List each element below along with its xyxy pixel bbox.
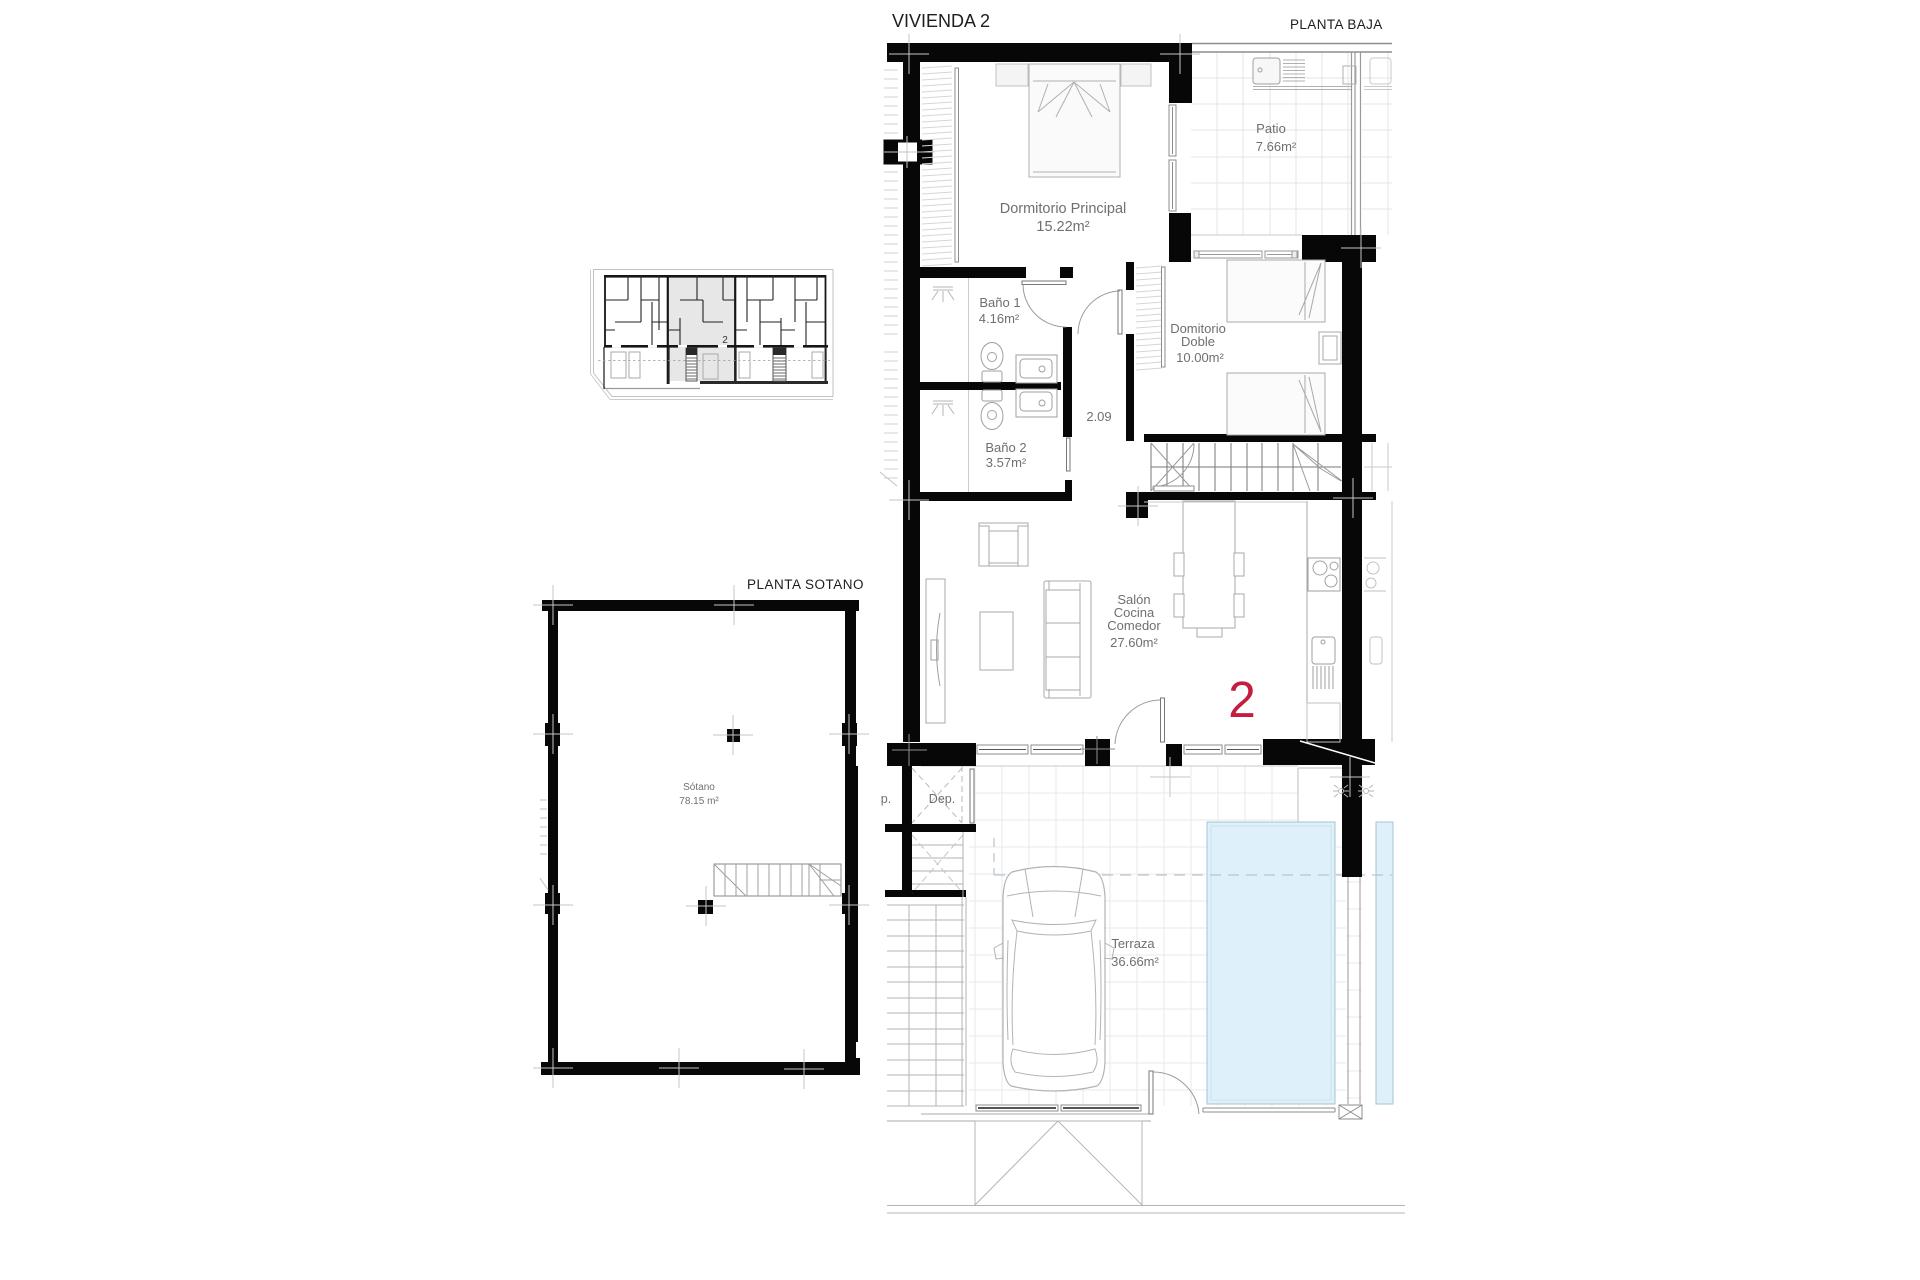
- svg-text:PLANTA BAJA: PLANTA BAJA: [1290, 17, 1383, 32]
- svg-text:36.66m²: 36.66m²: [1111, 954, 1159, 969]
- svg-text:PLANTA SOTANO: PLANTA SOTANO: [747, 577, 864, 592]
- svg-text:Baño 2: Baño 2: [985, 440, 1026, 455]
- svg-text:2.09: 2.09: [1086, 409, 1111, 424]
- svg-text:Terraza: Terraza: [1111, 936, 1155, 951]
- svg-text:Baño 1: Baño 1: [979, 295, 1020, 310]
- svg-text:Patio: Patio: [1256, 121, 1286, 136]
- svg-text:Dormitorio Principal: Dormitorio Principal: [1000, 201, 1127, 217]
- svg-text:Sótano: Sótano: [683, 782, 715, 793]
- svg-text:15.22m²: 15.22m²: [1036, 219, 1089, 235]
- svg-text:2: 2: [1228, 671, 1256, 728]
- svg-text:Doble: Doble: [1181, 334, 1215, 349]
- svg-text:Comedor: Comedor: [1107, 618, 1161, 633]
- svg-text:Dep.: Dep.: [929, 792, 955, 806]
- svg-text:7.66m²: 7.66m²: [1256, 139, 1297, 154]
- svg-text:2: 2: [722, 335, 728, 346]
- svg-text:10.00m²: 10.00m²: [1176, 350, 1224, 365]
- svg-text:3.57m²: 3.57m²: [986, 455, 1027, 470]
- svg-text:78.15 m²: 78.15 m²: [679, 796, 719, 807]
- svg-text:4.16m²: 4.16m²: [979, 311, 1020, 326]
- svg-text:27.60m²: 27.60m²: [1110, 635, 1158, 650]
- svg-text:p.: p.: [881, 792, 891, 806]
- svg-text:VIVIENDA 2: VIVIENDA 2: [892, 11, 990, 31]
